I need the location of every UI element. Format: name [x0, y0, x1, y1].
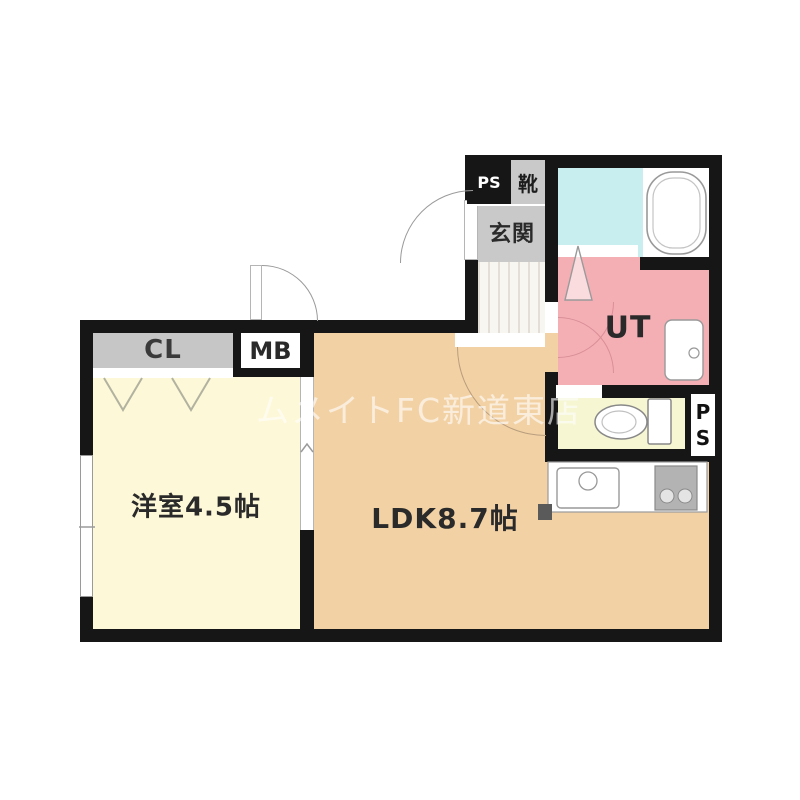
western-room-label: 洋室4.5帖: [131, 487, 261, 524]
pipe-space-right: P S: [691, 394, 715, 456]
wall: [80, 320, 465, 333]
wall: [233, 368, 300, 377]
entrance-label: 玄関: [489, 216, 535, 248]
meter-box-door-leaf: [250, 265, 262, 320]
front-door-swing: [400, 190, 473, 263]
ldk-label: LDK8.7帖: [371, 497, 518, 537]
pipe-space-right-p: P: [696, 399, 711, 425]
closet-track: [93, 368, 233, 378]
meter-box: MB: [241, 333, 300, 368]
pipe-space-top-label: PS: [477, 173, 500, 192]
wall: [300, 530, 314, 642]
wall: [233, 332, 241, 368]
bathtub-area: [643, 168, 709, 257]
western-room-window: [80, 455, 93, 597]
closet-label: CL: [144, 335, 182, 365]
bath-doorway: [558, 245, 638, 257]
wall: [80, 320, 93, 455]
wall: [545, 257, 558, 302]
meter-box-door-swing: [262, 265, 318, 321]
pipe-space-top: PS: [467, 160, 511, 206]
hallway-floor: [478, 262, 545, 333]
wall: [545, 155, 558, 270]
pipe-space-right-s: S: [696, 425, 710, 451]
wall: [465, 257, 478, 333]
floor-plan: MB PS 靴 P S: [0, 0, 800, 800]
wall: [300, 320, 314, 377]
wall: [80, 629, 722, 642]
watermark-text: ムメイトFC新道東店: [256, 384, 582, 432]
shoe-cabinet-label: 靴: [518, 168, 538, 197]
utility-label: UT: [605, 311, 652, 346]
bathroom-floor: [558, 168, 643, 257]
hall-ldk-doorway: [455, 333, 545, 347]
meter-box-label: MB: [249, 337, 291, 365]
wall: [640, 257, 722, 270]
shoe-cabinet: 靴: [511, 160, 545, 206]
